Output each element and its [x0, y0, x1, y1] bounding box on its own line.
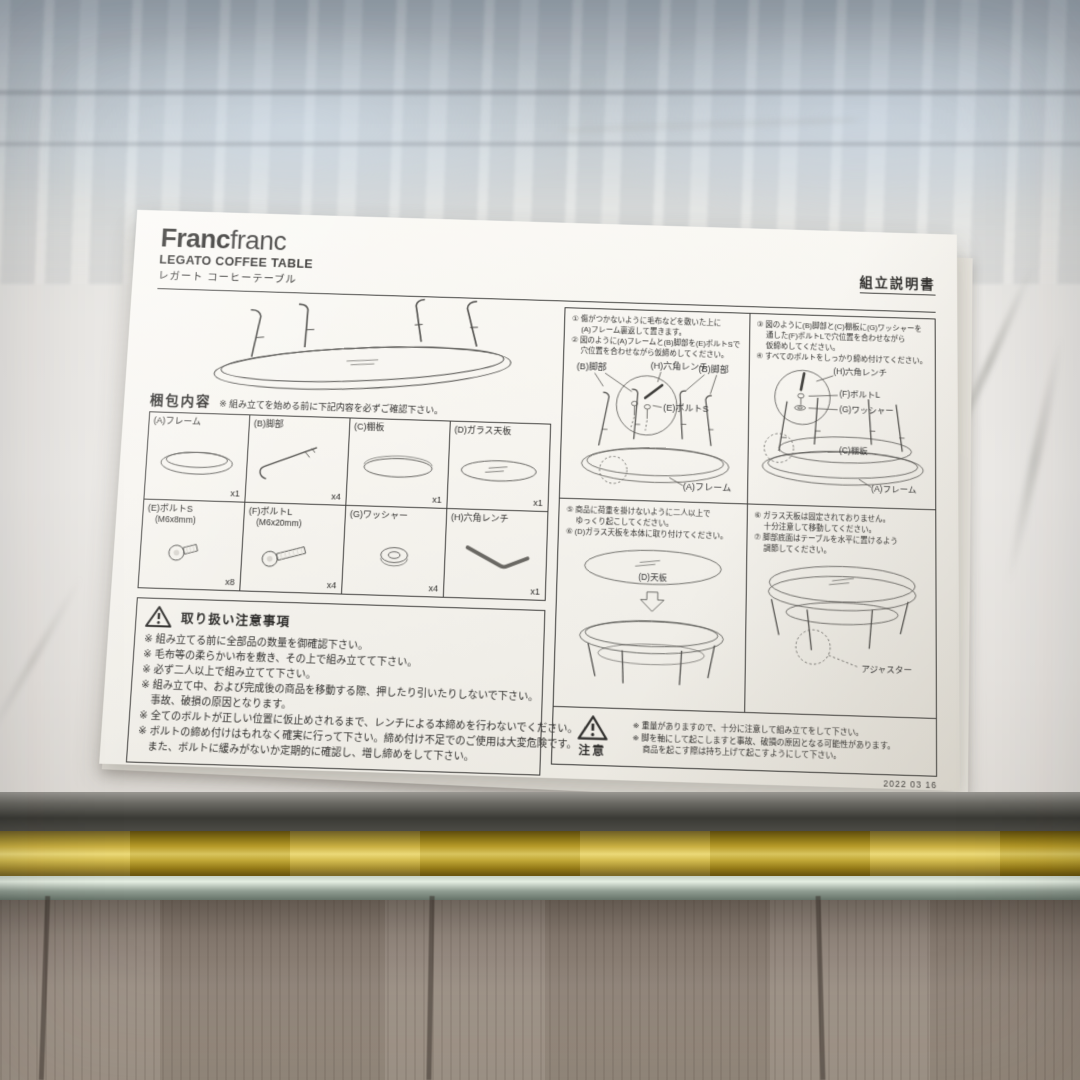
diagram-label: (A)フレーム: [683, 482, 732, 494]
part-label: (A)フレーム: [153, 415, 245, 428]
product-name-ja: レガート コーヒーテーブル: [158, 268, 313, 287]
instruction-sheet: Francfranc LEGATO COFFEE TABLE レガート コーヒー…: [99, 210, 960, 791]
step-panel-4: ⑥ ガラス天板は固定されておりません。 十分注意して移動してください。 ⑦ 脚部…: [745, 504, 936, 718]
diagram-label: (B)脚部: [577, 360, 607, 372]
part-qty: x1: [530, 586, 540, 596]
frame-overview-diagram: [151, 295, 555, 400]
part-cell-glass-top: (D)ガラス天板 x1: [447, 421, 551, 512]
step-panel-2: ③ 図のように(B)脚部と(C)棚板に(G)ワッシャーを 通した(F)ボルトLで…: [747, 314, 935, 510]
handling-heading: 取り扱い注意事項: [180, 608, 290, 631]
part-cell-bolt-l: (F)ボルトL (M6x20mm) x4: [240, 502, 346, 594]
part-label: (G)ワッシャー: [350, 509, 443, 523]
part-cell-leg: (B)脚部 x4: [245, 415, 350, 505]
caution-icon-block: 注意: [562, 713, 622, 759]
caution-lines: ※ 重量がありますので、十分に注意して組み立てをして下さい。 ※ 脚を軸にして起…: [632, 720, 895, 764]
part-label: (D)ガラス天板: [454, 425, 546, 438]
packing-heading: 梱包内容: [149, 389, 212, 410]
step3-4-diagram: (H)六角レンチ (F)ボルトL (G)ワッシャー: [755, 363, 930, 495]
step5-6-diagram: (D)天板: [561, 538, 741, 693]
part-cell-hex-wrench: (H)六角レンチ x1: [443, 508, 548, 600]
parts-table: (A)フレーム x1 (B)脚部 x4: [137, 411, 551, 601]
frame-icon: [150, 436, 244, 484]
part-label: (B)脚部: [254, 418, 346, 431]
diagram-label: (E)ボルトS: [663, 402, 709, 413]
washer-icon: [347, 533, 441, 576]
part-label: (C)棚板: [354, 422, 446, 435]
leg-icon: [250, 439, 344, 487]
diagram-label: アジャスター: [861, 663, 912, 675]
caution-heading: 注意: [578, 742, 606, 759]
step7-diagram: アジャスター: [752, 555, 930, 682]
warning-triangle-icon: [577, 714, 608, 742]
diagram-label: (H)六角レンチ: [833, 366, 887, 377]
part-cell-bolt-s: (E)ボルトS (M6x8mm) x8: [138, 499, 245, 591]
part-sub: (M6x20mm): [256, 517, 341, 530]
right-column: ① 傷がつかないように毛布などを敷いた上に (A)フレーム裏返して置きます。 ②…: [550, 307, 937, 790]
part-sub: (M6x8mm): [155, 514, 240, 527]
part-qty: x4: [331, 492, 341, 502]
step1-2-diagram: (B)脚部 (H)六角レンチ (E)ボルトS (B)脚部 (A)フレーム: [567, 357, 744, 493]
hex-wrench-icon: [449, 536, 543, 579]
diagram-label: (B)脚部: [699, 362, 729, 374]
shelf-icon: [351, 443, 445, 491]
caution-strip: 注意 ※ 重量がありますので、十分に注意して組み立てをして下さい。 ※ 脚を軸に…: [552, 706, 936, 776]
left-column: 梱包内容 ※ 組み立てを始める前に下記内容を必ずご確認下さい。 (A)フレーム …: [126, 295, 555, 778]
diagram-label: (A)フレーム: [871, 483, 916, 494]
part-qty: x4: [428, 583, 438, 593]
tabletop-front-edge: [0, 792, 1080, 834]
part-cell-washer: (G)ワッシャー x4: [341, 505, 446, 597]
brass-frame-bar: [0, 831, 1080, 879]
part-label: (H)六角レンチ: [451, 512, 544, 526]
photo-scene: Francfranc LEGATO COFFEE TABLE レガート コーヒー…: [0, 0, 1080, 1080]
document-title: 組立説明書: [859, 271, 935, 295]
diagram-label: (D)天板: [638, 571, 668, 582]
logo-light: franc: [229, 226, 287, 256]
part-qty: x4: [327, 580, 337, 590]
diagram-label: (C)棚板: [838, 444, 867, 455]
diagram-label: (F)ボルトL: [839, 389, 880, 400]
part-qty: x1: [230, 488, 240, 498]
wood-floor-near: [0, 900, 1080, 1080]
glass-top-icon: [452, 446, 545, 494]
assembly-steps-box: ① 傷がつかないように毛布などを敷いた上に (A)フレーム裏返して置きます。 ②…: [551, 307, 937, 777]
step-panel-3: ⑤ 商品に荷重を掛けないように二人以上で ゆっくり起こしてください。 ⑥ (D)…: [554, 499, 748, 712]
part-cell-frame: (A)フレーム x1: [144, 412, 250, 502]
bolt-short-icon: [144, 527, 239, 570]
warning-triangle-icon: [145, 605, 173, 629]
part-qty: x1: [432, 495, 442, 505]
part-qty: x8: [225, 577, 235, 587]
logo-bold: Franc: [160, 224, 231, 254]
step-panel-1: ① 傷がつかないように毛布などを敷いた上に (A)フレーム裏返して置きます。 ②…: [560, 308, 750, 504]
part-qty: x1: [533, 498, 543, 508]
bolt-long-icon: [245, 530, 339, 573]
francfranc-logo: Francfranc: [160, 226, 315, 256]
part-cell-shelf: (C)棚板 x1: [346, 418, 451, 509]
diagram-label: (G)ワッシャー: [839, 404, 893, 416]
brand-block: Francfranc LEGATO COFFEE TABLE レガート コーヒー…: [158, 226, 315, 287]
glass-shelf-edge: [0, 876, 1080, 902]
handling-precautions-box: 取り扱い注意事項 ※ 組み立てる前に全部品の数量を御確認下さい。 ※ 毛布等の柔…: [126, 597, 546, 775]
